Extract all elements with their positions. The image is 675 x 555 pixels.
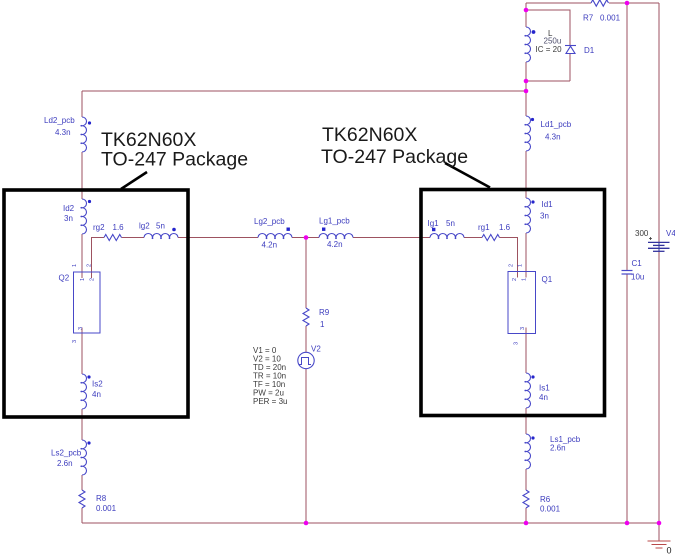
svg-text:4.3n: 4.3n [545, 133, 561, 142]
svg-text:Lg2_pcb: Lg2_pcb [254, 217, 285, 226]
svg-text:V4: V4 [666, 229, 675, 238]
svg-text:3n: 3n [64, 214, 73, 223]
svg-text:2: 2 [87, 264, 93, 267]
svg-text:4n: 4n [92, 390, 101, 399]
svg-text:TO-247 Package: TO-247 Package [101, 149, 248, 171]
svg-text:4.2n: 4.2n [327, 240, 343, 249]
svg-text:1: 1 [80, 278, 86, 281]
svg-text:1.6: 1.6 [499, 223, 511, 232]
svg-text:Lg1_pcb: Lg1_pcb [319, 217, 350, 226]
svg-text:2: 2 [509, 264, 515, 267]
svg-text:1.6: 1.6 [113, 223, 125, 232]
svg-text:Is2: Is2 [92, 380, 103, 389]
svg-text:2.6n: 2.6n [550, 444, 566, 453]
svg-text:Q2: Q2 [59, 274, 70, 283]
svg-text:4n: 4n [539, 393, 548, 402]
svg-text:V2: V2 [311, 345, 321, 354]
svg-text:rg2: rg2 [93, 223, 105, 232]
svg-text:3n: 3n [540, 212, 549, 221]
svg-text:2: 2 [512, 278, 518, 281]
svg-text:Ig1: Ig1 [428, 219, 440, 228]
svg-text:1: 1 [72, 264, 78, 267]
svg-text:0.001: 0.001 [600, 14, 621, 23]
svg-text:C1: C1 [632, 259, 643, 268]
svg-text:Id1: Id1 [542, 200, 554, 209]
svg-text:1: 1 [518, 264, 524, 267]
svg-text:R9: R9 [319, 308, 330, 317]
svg-text:0: 0 [667, 546, 672, 555]
svg-text:300: 300 [635, 229, 649, 238]
svg-text:10u: 10u [631, 273, 644, 282]
svg-text:lg2: lg2 [139, 222, 150, 231]
svg-text:PER = 3u: PER = 3u [253, 397, 287, 406]
svg-text:5n: 5n [446, 219, 455, 228]
svg-text:3: 3 [78, 327, 84, 330]
svg-text:1: 1 [522, 278, 528, 281]
svg-text:2.6n: 2.6n [57, 459, 73, 468]
svg-text:4.3n: 4.3n [55, 128, 71, 137]
svg-text:rg1: rg1 [478, 223, 490, 232]
svg-text:Q1: Q1 [542, 275, 553, 284]
svg-text:3: 3 [72, 340, 78, 343]
svg-text:R7: R7 [583, 14, 594, 23]
svg-text:3: 3 [514, 342, 520, 345]
svg-text:5n: 5n [156, 222, 165, 231]
svg-text:3: 3 [520, 327, 526, 330]
svg-text:2: 2 [90, 278, 96, 281]
svg-text:Id2: Id2 [63, 204, 75, 213]
svg-text:TO-247 Package: TO-247 Package [321, 146, 468, 168]
svg-text:R8: R8 [96, 494, 107, 503]
svg-text:0.001: 0.001 [96, 504, 117, 513]
svg-text:Is1: Is1 [539, 384, 550, 393]
svg-text:0.001: 0.001 [540, 505, 561, 514]
svg-text:R6: R6 [540, 495, 551, 504]
svg-text:IC = 20: IC = 20 [536, 45, 563, 54]
svg-text:Ld2_pcb: Ld2_pcb [44, 116, 75, 125]
svg-text:Ld1_pcb: Ld1_pcb [541, 120, 572, 129]
svg-text:TK62N60X: TK62N60X [322, 124, 417, 146]
svg-text:Ls2_pcb: Ls2_pcb [51, 449, 82, 458]
svg-text:D1: D1 [584, 46, 595, 55]
svg-text:4.2n: 4.2n [262, 241, 278, 250]
svg-text:1: 1 [320, 320, 325, 329]
